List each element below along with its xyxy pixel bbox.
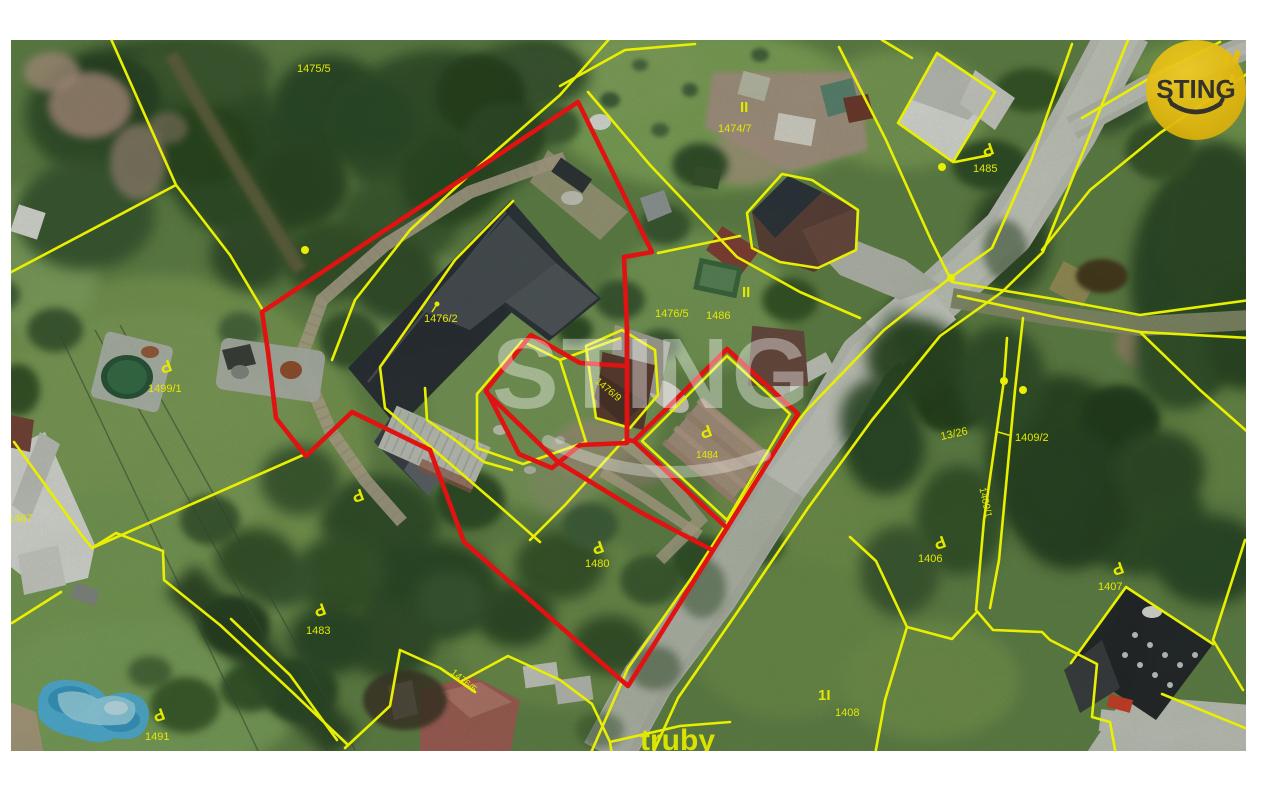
svg-text:1491: 1491	[145, 731, 169, 743]
svg-text:1409/2: 1409/2	[1015, 432, 1049, 444]
svg-text:1486: 1486	[706, 310, 730, 322]
svg-text:1487: 1487	[8, 513, 32, 525]
svg-text:1408: 1408	[835, 707, 859, 719]
svg-text:1474/7: 1474/7	[718, 123, 752, 135]
svg-text:1499/1: 1499/1	[148, 383, 182, 395]
svg-text:1485: 1485	[973, 163, 997, 175]
svg-text:II: II	[740, 99, 748, 116]
svg-text:1475/5: 1475/5	[297, 63, 331, 75]
svg-text:1483: 1483	[306, 625, 330, 637]
svg-text:STING: STING	[492, 318, 813, 430]
svg-text:1476/2: 1476/2	[424, 313, 458, 325]
svg-text:1407: 1407	[1098, 581, 1122, 593]
svg-text:II: II	[742, 284, 750, 301]
svg-text:1484: 1484	[696, 450, 719, 461]
svg-text:1I: 1I	[818, 687, 831, 704]
svg-text:1480: 1480	[585, 558, 609, 570]
svg-text:1476/5: 1476/5	[655, 308, 689, 320]
svg-text:1406: 1406	[918, 553, 942, 565]
